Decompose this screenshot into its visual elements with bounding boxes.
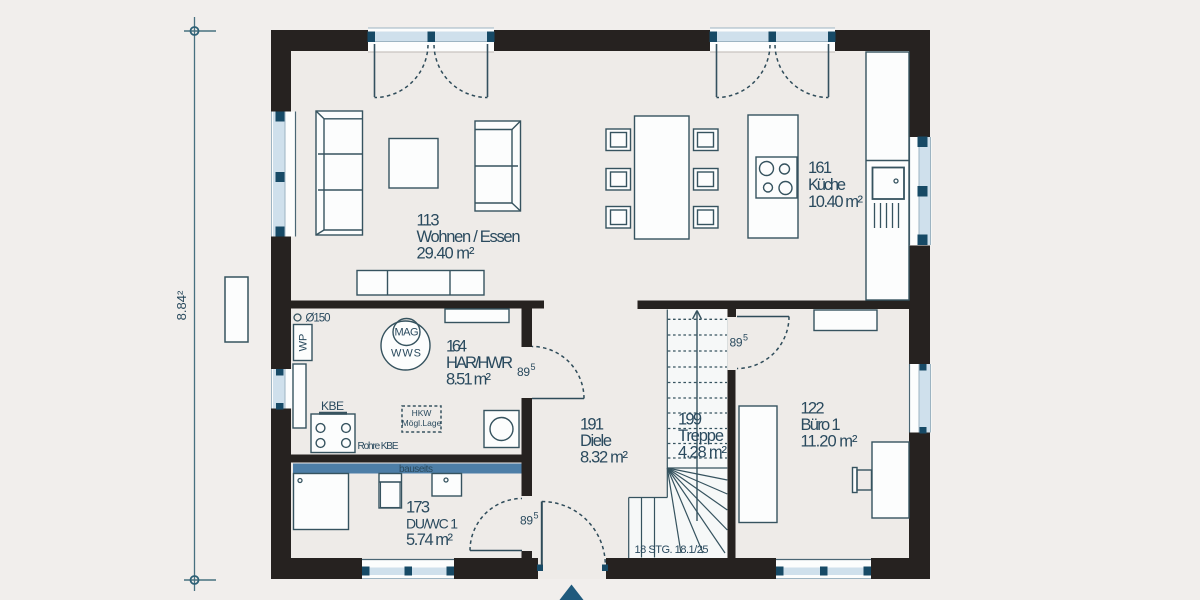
svg-text:89: 89 [517, 365, 530, 379]
svg-text:29.40 m²: 29.40 m² [417, 245, 476, 263]
svg-text:Büro 1: Büro 1 [801, 416, 841, 434]
svg-text:MAG: MAG [395, 327, 419, 339]
svg-text:18 STG. 18.1/25: 18 STG. 18.1/25 [635, 544, 709, 556]
svg-text:Küche: Küche [808, 176, 846, 194]
svg-text:5: 5 [534, 511, 539, 521]
svg-text:8.32 m²: 8.32 m² [580, 449, 629, 467]
svg-text:8.51 m²: 8.51 m² [446, 371, 492, 389]
svg-text:Treppe: Treppe [678, 427, 724, 445]
svg-text:Mögl.Lage: Mögl.Lage [402, 418, 442, 428]
svg-text:5: 5 [531, 362, 536, 372]
svg-text:173: 173 [406, 499, 430, 517]
svg-text:199: 199 [678, 411, 702, 429]
svg-text:5.74 m²: 5.74 m² [406, 531, 454, 549]
svg-text:122: 122 [801, 400, 825, 418]
svg-text:5: 5 [743, 333, 748, 343]
svg-text:161: 161 [808, 159, 832, 177]
svg-text:bauseits: bauseits [399, 464, 433, 475]
svg-text:Rohre KBE: Rohre KBE [358, 441, 399, 452]
svg-text:89: 89 [520, 514, 533, 528]
svg-text:164: 164 [446, 338, 467, 356]
svg-text:89: 89 [730, 336, 743, 350]
svg-text:DU/WC 1: DU/WC 1 [406, 516, 458, 532]
svg-text:191: 191 [580, 416, 604, 434]
svg-text:HKW: HKW [412, 408, 432, 418]
svg-text:4.28 m²: 4.28 m² [678, 444, 728, 462]
svg-text:10.40 m²: 10.40 m² [808, 193, 864, 211]
svg-text:HAR/HWR: HAR/HWR [446, 354, 513, 372]
svg-text:8.84²: 8.84² [174, 290, 189, 320]
svg-text:KBE: KBE [321, 399, 344, 413]
svg-text:Wohnen / Essen: Wohnen / Essen [417, 228, 521, 246]
svg-text:Ø150: Ø150 [306, 313, 331, 325]
svg-text:11.20 m²: 11.20 m² [801, 433, 859, 451]
svg-text:Diele: Diele [580, 432, 612, 450]
svg-text:113: 113 [417, 212, 440, 230]
svg-text:WP: WP [298, 334, 310, 352]
svg-text:WWS: WWS [391, 348, 421, 360]
